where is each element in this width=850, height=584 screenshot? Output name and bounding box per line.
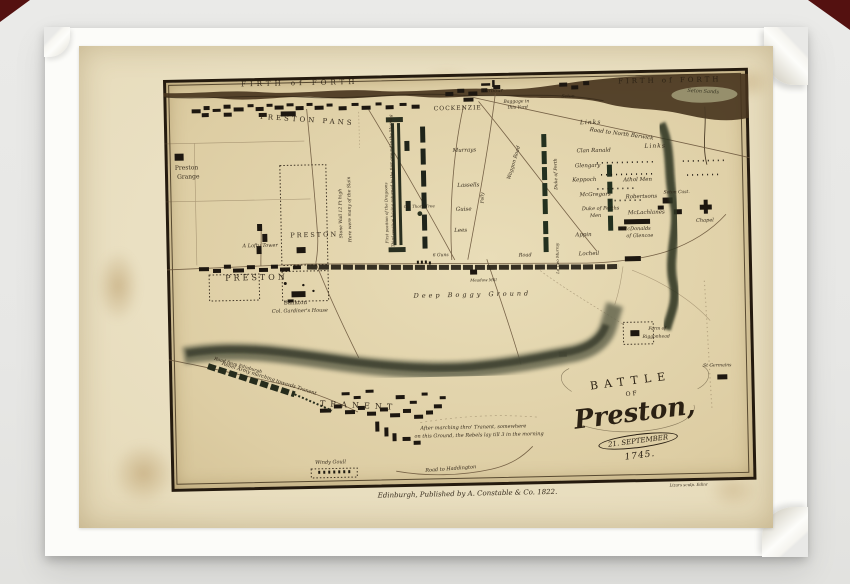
corner-decoration-left [0,0,30,22]
label-athol-men: Athol Men [623,178,652,184]
label-links-upper: Links [580,120,602,126]
label-cockenzie: COCKENZIE [434,105,482,112]
label-preston-grange-1: Preston [175,165,199,171]
label-chapel: Chapel [696,218,714,223]
map-sheet: FIRTH of FORTH FIRTH of FORTH PRESTON PA… [79,46,773,528]
label-mclachlanes: McLachlanes [628,211,665,217]
label-folly: Folly [481,192,486,203]
label-seton: Seton [561,95,574,100]
label-locheil: Locheil [579,252,599,258]
label-st-germains: St Germains [703,364,731,369]
label-mcdonalds-1: McDonalds [622,227,651,233]
map-engraving: FIRTH of FORTH FIRTH of FORTH PRESTON PA… [163,68,757,512]
label-links-lower: Links [644,143,666,149]
label-road: Road [519,253,532,258]
label-riggonhead-1: Farm of [648,328,666,333]
label-clan-ranald: Clan Ranald [577,149,611,155]
label-ld-geo-murray: Ld Geo Murray [555,243,560,274]
label-lees: Lees [454,229,467,235]
label-riggonhead-2: Riggonhead [642,335,669,340]
engraver-credit: Lizars sculp. Edinr [670,483,708,488]
label-keppoch: Keppoch [572,178,596,184]
label-harbour: Harbour [481,89,503,94]
print-card: FIRTH of FORTH FIRTH of FORTH PRESTON PA… [45,28,807,556]
label-robertsons: Robertsons [626,195,658,201]
label-seton-castle: Seton Cast. [663,191,689,196]
label-lofty-tower: A Lofty Tower [242,244,277,250]
label-mcgregors: McGregors [579,193,610,199]
page-curl-top-left [44,27,70,57]
photo-background: FIRTH of FORTH FIRTH of FORTH PRESTON PA… [0,0,850,584]
label-duke-of-perth: Duke of Perth [555,158,560,190]
label-six-guns: 6 Guns [433,254,449,259]
label-appin: Appin [575,233,591,239]
label-meadow-mill: Meadow Mill [470,278,497,283]
paper-stain [89,236,147,336]
publisher-imprint: Edinburgh, Published by A. Constable & C… [378,489,558,500]
label-preston-town: PRESTON [225,273,288,282]
label-guise: Guise [456,208,472,214]
label-murrays: Murrays [453,148,477,154]
label-glengary: Glengary [575,164,601,170]
label-preston-grange-2: Grange [177,174,200,180]
label-mcdonalds-2: of Glencoe [626,234,653,240]
label-lassells: Lassells [457,183,479,189]
corner-decoration-right [808,0,850,30]
label-baggage-2: this Yard [508,106,528,111]
label-old-thorn-tree: Old Thorn Tree [404,204,435,209]
map-title-cartouche: BATTLE OF Preston, 21. SEPTEMBER 1745. [563,366,707,469]
label-preston-park: PRESTON [290,231,338,239]
label-bankton: Bankton [284,301,307,307]
label-windy-goull: Windy Goull [315,460,346,466]
label-duke-perths-men-2: Men [590,214,601,219]
label-duke-perths-men-1: Duke of Perths [582,206,620,212]
